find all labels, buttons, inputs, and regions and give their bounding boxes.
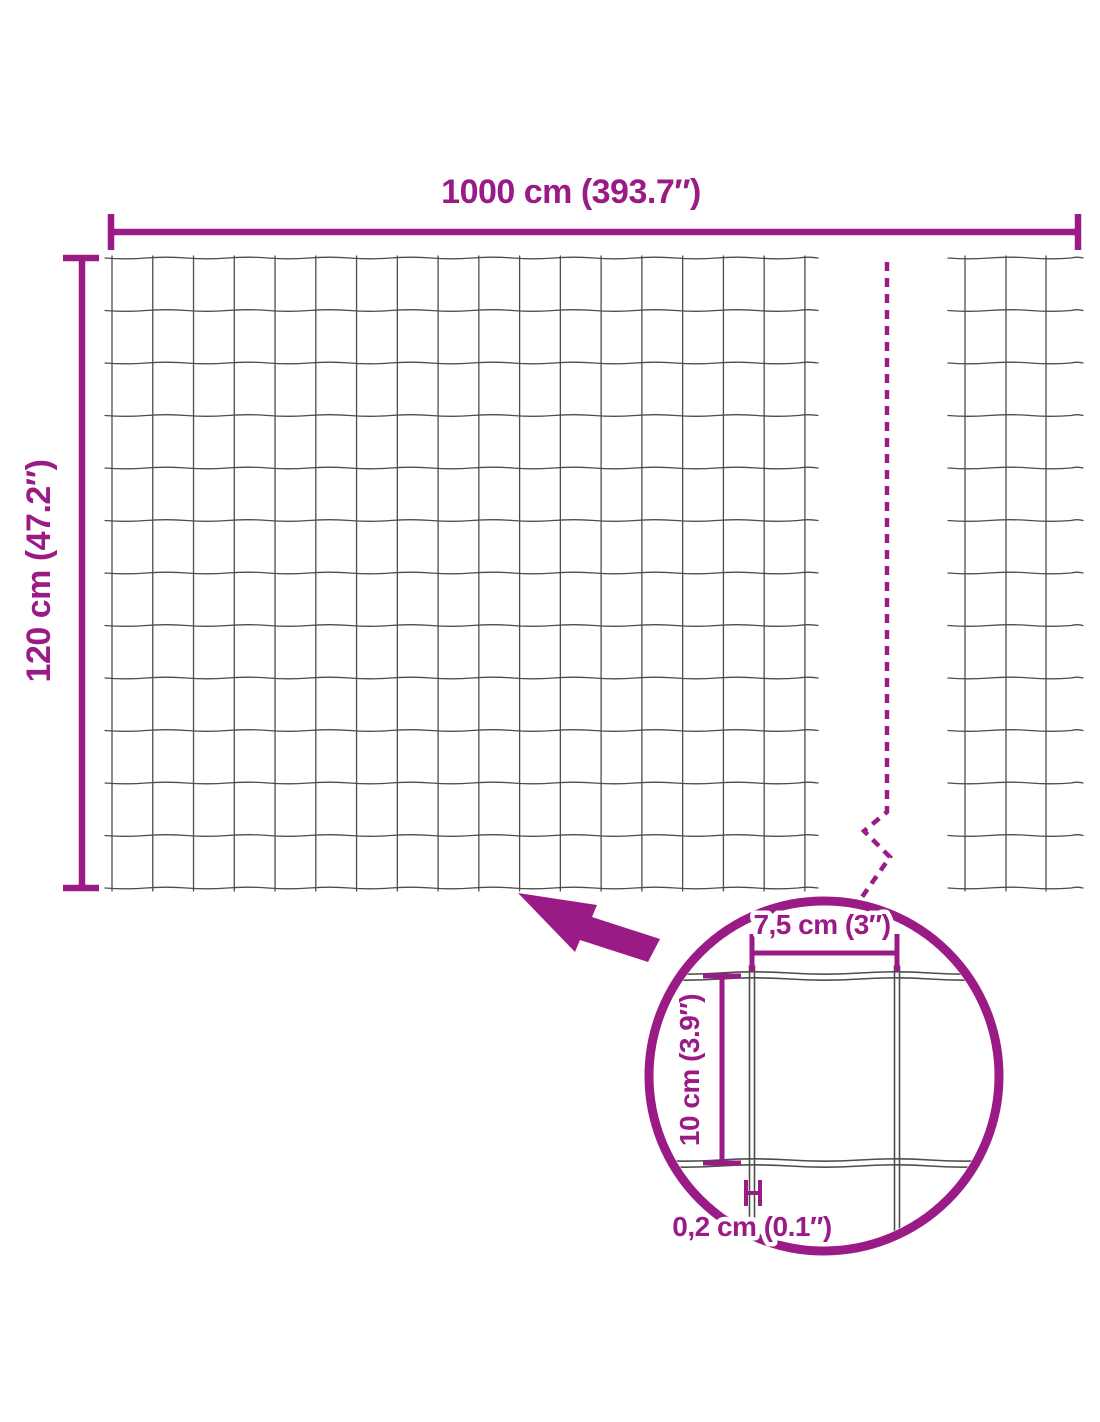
mesh-wire xyxy=(650,978,1000,980)
mesh-width-dimension: 7,5 cm (3″) xyxy=(752,909,897,972)
overall-height-dimension: 120 cm (47.2″) xyxy=(20,258,99,888)
width-dimension-label: 1000 cm (393.7″) xyxy=(441,173,701,211)
mesh-height-label: 10 cm (3.9″) xyxy=(674,994,705,1146)
mesh-main-grid xyxy=(105,256,818,891)
mesh-wire xyxy=(650,1159,1000,1161)
wire-thickness-label: 0,2 cm (0.1″) xyxy=(672,1211,831,1242)
mesh-wire xyxy=(948,625,1083,627)
mesh-wire xyxy=(105,835,818,837)
mesh-wire xyxy=(650,1165,1000,1167)
mesh-wire xyxy=(948,730,1083,732)
mesh-wire xyxy=(948,415,1083,417)
mesh-wire xyxy=(948,835,1083,837)
zoom-arrow-icon xyxy=(518,893,660,962)
mesh-wire xyxy=(948,572,1083,574)
mesh-wire xyxy=(948,362,1083,364)
mesh-wire xyxy=(948,887,1083,889)
mesh-wire xyxy=(105,625,818,627)
diagram-canvas: 1000 cm (393.7″) 120 cm (47.2″) 7,5 cm (… xyxy=(0,0,1100,1422)
mesh-wire xyxy=(105,415,818,417)
mesh-wire xyxy=(948,677,1083,679)
overall-width-dimension: 1000 cm (393.7″) xyxy=(111,173,1078,250)
mesh-wire xyxy=(948,467,1083,469)
mesh-width-label: 7,5 cm (3″) xyxy=(753,909,890,940)
mesh-wire xyxy=(948,310,1083,312)
mesh-wire xyxy=(948,782,1083,784)
mesh-wire xyxy=(650,972,1000,974)
mesh-wire xyxy=(105,887,818,889)
mesh-wire xyxy=(105,467,818,469)
mesh-wire xyxy=(105,310,818,312)
height-dimension-label: 120 cm (47.2″) xyxy=(20,460,58,683)
mesh-wire xyxy=(105,520,818,522)
mesh-wire xyxy=(105,572,818,574)
mesh-wire xyxy=(948,257,1083,259)
mesh-wire xyxy=(105,782,818,784)
mesh-height-dimension: 10 cm (3.9″) xyxy=(674,976,741,1163)
mesh-wire xyxy=(948,520,1083,522)
product-dimension-diagram: 1000 cm (393.7″) 120 cm (47.2″) 7,5 cm (… xyxy=(0,0,1100,1422)
mesh-wire xyxy=(105,362,818,364)
mesh-right-grid xyxy=(948,256,1083,891)
panel-break-dashed-line xyxy=(862,262,890,897)
mesh-wire xyxy=(105,257,818,259)
mesh-wire xyxy=(105,677,818,679)
mesh-wire xyxy=(105,730,818,732)
